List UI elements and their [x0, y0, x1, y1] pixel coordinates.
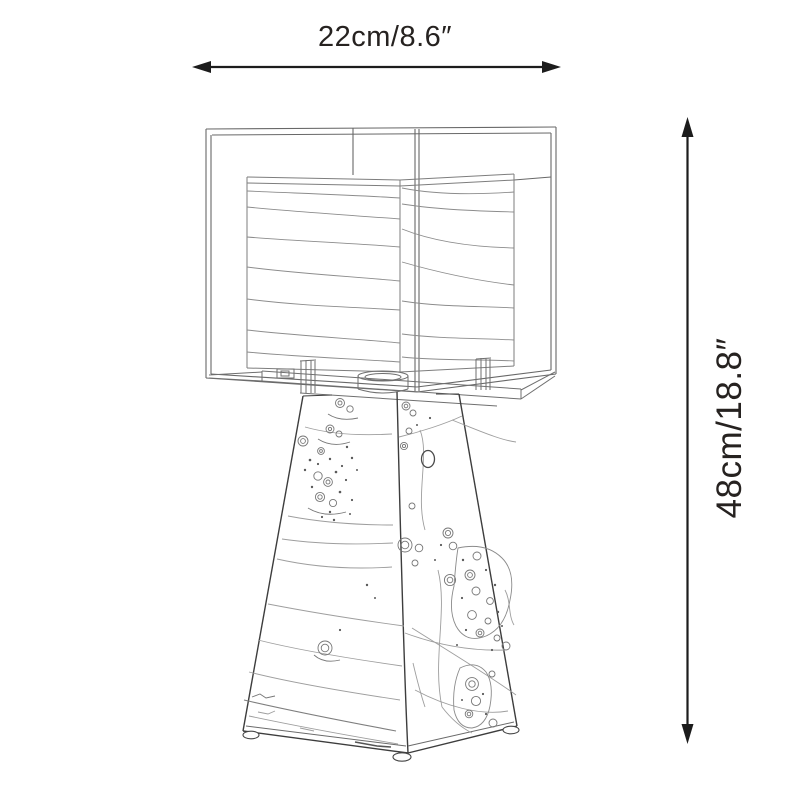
base-grain-left: [244, 427, 404, 747]
dimension-diagram: 22cm/8.6″ 48cm/18.8″: [0, 0, 800, 800]
arrowhead-up: [682, 117, 694, 137]
base-knots-left: [298, 399, 376, 662]
height-arrow: [682, 117, 694, 744]
inner-shade-outline: [247, 174, 514, 372]
arrowhead-down: [682, 724, 694, 744]
glass-cube-outline: [206, 127, 556, 392]
arrowhead-right: [542, 61, 561, 73]
base-feet: [243, 726, 519, 761]
width-arrow: [192, 61, 561, 73]
base-outline: [243, 392, 517, 753]
base-knots-right: [398, 402, 512, 728]
lamp-line-drawing: [0, 0, 800, 800]
base-grain-right: [399, 416, 516, 733]
height-dimension-label: 48cm/18.8″: [710, 338, 750, 519]
width-dimension-label: 22cm/8.6″: [230, 21, 540, 54]
shade-veneer-lines: [247, 188, 514, 362]
burl-dots-right: [416, 417, 503, 715]
arrowhead-left: [192, 61, 211, 73]
